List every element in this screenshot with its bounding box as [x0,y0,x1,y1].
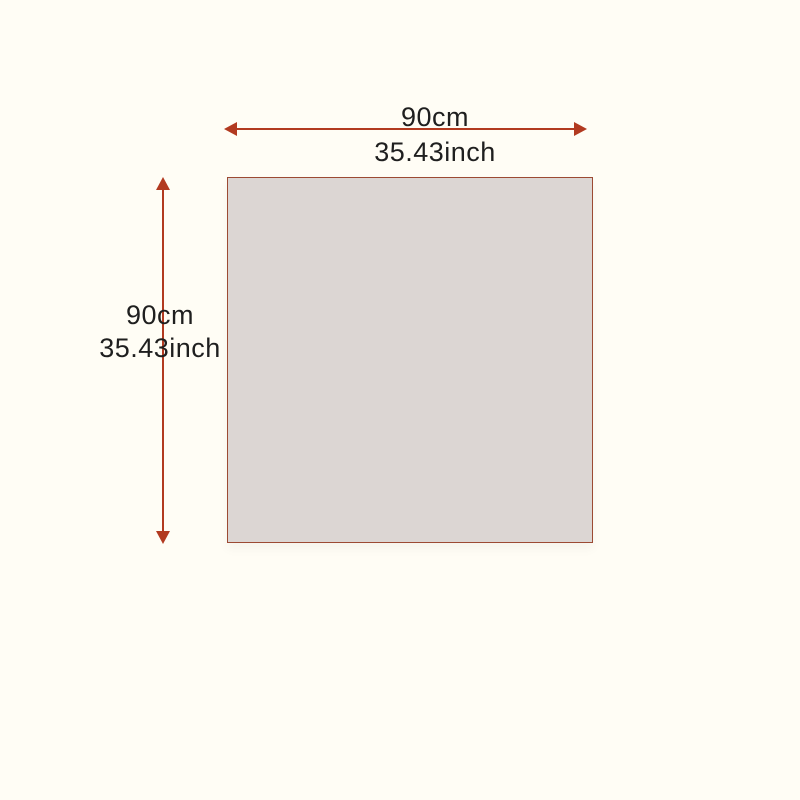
height-cm-label: 90cm [60,302,260,329]
width-inch-label: 35.43inch [285,139,585,166]
height-inch-label: 35.43inch [60,335,260,362]
arrowhead-down-icon [156,531,170,544]
dimension-diagram: 90cm 35.43inch 90cm 35.43inch [0,0,800,800]
product-square [227,177,593,543]
width-cm-label: 90cm [285,104,585,131]
